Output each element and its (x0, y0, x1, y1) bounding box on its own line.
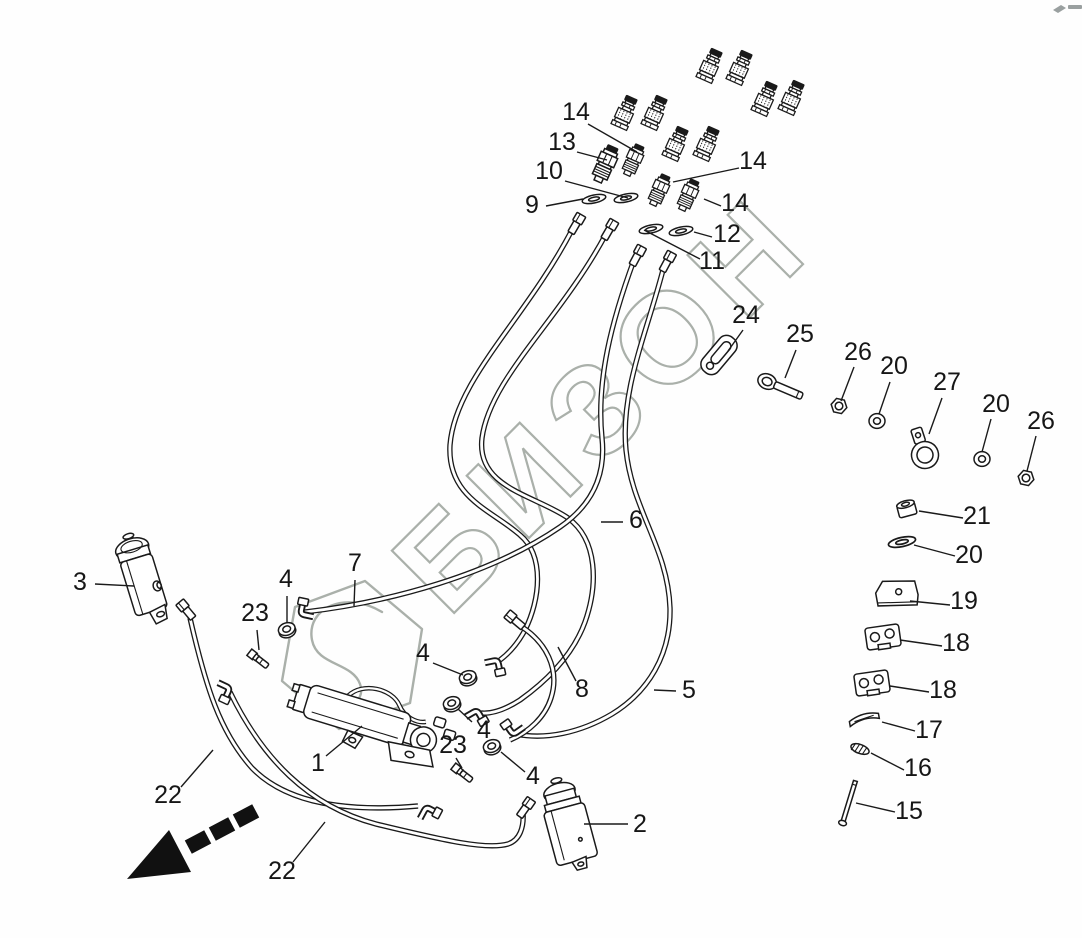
callout-19: 19 (950, 587, 978, 615)
part-26-nut (1017, 470, 1036, 487)
part-20-washer (869, 414, 885, 429)
callout-15: 15 (895, 797, 923, 825)
callout-3: 3 (73, 568, 87, 596)
callout-14: 14 (562, 98, 590, 126)
exploded-parts-diagram: БИЗОН (0, 0, 1082, 938)
coupler (726, 49, 755, 85)
part-4-nut (458, 669, 479, 688)
callout-1: 1 (311, 749, 325, 777)
callout-26: 26 (844, 338, 872, 366)
coupler (662, 125, 691, 161)
part-4-nut (277, 621, 298, 640)
callout-7: 7 (348, 549, 362, 577)
callout-20: 20 (880, 352, 908, 380)
part-23-bolt (247, 649, 270, 669)
callout-9: 9 (525, 191, 539, 219)
coupler (751, 80, 780, 116)
page-corner-marks (1053, 5, 1082, 13)
callout-6: 6 (629, 506, 643, 534)
callout-10: 10 (535, 157, 563, 185)
part-3-cylinder (111, 529, 171, 629)
part-16-spring (850, 742, 871, 757)
small-hardware (247, 621, 503, 784)
callout-13: 13 (548, 128, 576, 156)
callout-4: 4 (477, 716, 491, 744)
callout-18: 18 (942, 629, 970, 657)
callout-4: 4 (526, 762, 540, 790)
coupler (778, 79, 807, 115)
part-18-clamp (865, 624, 902, 652)
coupler (611, 94, 640, 130)
callout-24: 24 (732, 301, 760, 329)
callout-5: 5 (682, 676, 696, 704)
callout-14: 14 (721, 189, 749, 217)
callout-21: 21 (963, 502, 991, 530)
callout-14: 14 (739, 147, 767, 175)
callout-22: 22 (268, 857, 296, 885)
adapter-fittings (589, 142, 701, 213)
part-1-valve-assembly (281, 665, 461, 776)
coupler (696, 47, 725, 83)
part-23-bolt (451, 763, 474, 783)
part-18-clamp (854, 670, 891, 698)
callout-18: 18 (929, 676, 957, 704)
part-20-washer (888, 535, 917, 550)
coupler-group (611, 47, 807, 161)
callout-2: 2 (633, 810, 647, 838)
part-14-fitting (646, 172, 673, 208)
part-27-clamp (904, 424, 943, 472)
coupler (693, 125, 722, 161)
direction-arrow-icon (127, 804, 259, 879)
part-13-fitting (589, 143, 621, 185)
callout-16: 16 (904, 754, 932, 782)
part-14-fitting (620, 142, 647, 178)
callout-20: 20 (955, 541, 983, 569)
callout-11: 11 (699, 247, 725, 275)
callout-26: 26 (1027, 407, 1055, 435)
callout-4: 4 (279, 565, 293, 593)
part-21-bushing (896, 498, 917, 518)
callout-23: 23 (241, 599, 269, 627)
callout-8: 8 (575, 675, 589, 703)
callout-27: 27 (933, 368, 961, 396)
part-20-washer (974, 452, 990, 467)
callout-25: 25 (786, 320, 814, 348)
parts-diagram-page: БИЗОН (0, 0, 1082, 938)
callout-12: 12 (713, 220, 741, 248)
part-9-washer (581, 193, 606, 206)
part-26-nut (830, 398, 849, 415)
callout-22: 22 (154, 781, 182, 809)
callout-23: 23 (439, 731, 467, 759)
callout-20: 20 (982, 390, 1010, 418)
sealing-washers (581, 192, 693, 238)
coupler (641, 94, 670, 130)
callout-4: 4 (416, 639, 430, 667)
part-19-bracket (875, 578, 920, 609)
part-17-strip (849, 712, 880, 727)
callout-17: 17 (915, 716, 943, 744)
part-25-pin (755, 371, 805, 403)
